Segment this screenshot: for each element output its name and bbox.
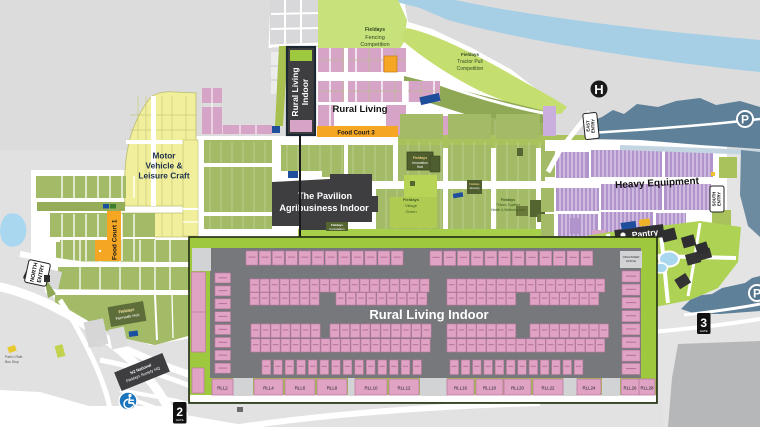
svg-text:Indoor: Indoor [300, 78, 310, 105]
svg-text:Fieldays: Fieldays [413, 156, 427, 160]
svg-text:Rural Living: Rural Living [333, 104, 388, 115]
svg-text:P: P [753, 287, 760, 301]
svg-text:RLL26: RLL26 [624, 385, 637, 390]
svg-text:Food Court 1: Food Court 1 [112, 219, 119, 260]
svg-text:Health & Wellbeing Hub: Health & Wellbeing Hub [491, 208, 525, 212]
svg-text:RLL2: RLL2 [217, 385, 228, 390]
svg-text:RLL18: RLL18 [483, 385, 496, 390]
svg-text:RLL22: RLL22 [542, 385, 555, 390]
svg-text:Fencing: Fencing [365, 35, 385, 41]
svg-text:RLL6: RLL6 [295, 385, 306, 390]
svg-text:Leisure Craft: Leisure Craft [138, 171, 189, 181]
svg-text:Rural Living: Rural Living [290, 67, 300, 116]
svg-text:Fieldays: Fieldays [403, 197, 420, 202]
svg-text:H: H [594, 82, 603, 97]
svg-text:Agribusiness Indoor: Agribusiness Indoor [279, 203, 369, 213]
svg-text:Fieldays: Fieldays [365, 27, 385, 33]
svg-text:RLL4: RLL4 [263, 385, 274, 390]
svg-text:Tūhono Together: Tūhono Together [496, 203, 521, 207]
svg-text:ENTRY: ENTRY [717, 192, 722, 206]
svg-text:3: 3 [700, 316, 707, 330]
svg-text:Fieldays: Fieldays [461, 52, 480, 57]
svg-text:Foundation: Foundation [329, 227, 344, 231]
svg-text:RLL24: RLL24 [583, 385, 596, 390]
svg-text:RLL8: RLL8 [327, 385, 338, 390]
svg-text:RLL16: RLL16 [454, 385, 467, 390]
svg-text:Competition: Competition [457, 66, 484, 72]
svg-text:Tractor Pull: Tractor Pull [457, 59, 482, 65]
svg-text:ENTRY: ENTRY [591, 119, 596, 133]
svg-text:P: P [741, 113, 749, 127]
svg-text:OFFICE: OFFICE [626, 259, 636, 263]
svg-text:Fieldays: Fieldays [501, 198, 515, 202]
svg-text:GATE: GATE [176, 418, 184, 422]
svg-text:RLL12: RLL12 [398, 385, 411, 390]
svg-text:Rural Living Indoor: Rural Living Indoor [369, 307, 488, 322]
svg-text:The Pavilion: The Pavilion [298, 191, 353, 201]
svg-text:RLL28: RLL28 [641, 385, 654, 390]
svg-text:GATE: GATE [700, 329, 708, 333]
svg-text:2: 2 [176, 405, 183, 419]
svg-text:Hub: Hub [417, 165, 423, 169]
svg-text:Vehicle &: Vehicle & [146, 161, 183, 171]
svg-text:Bus Stop: Bus Stop [5, 360, 19, 364]
svg-text:RLL10: RLL10 [365, 385, 378, 390]
svg-text:Food Court 3: Food Court 3 [337, 131, 375, 137]
svg-text:Competition: Competition [360, 42, 389, 48]
svg-text:RLL20: RLL20 [511, 385, 524, 390]
svg-text:Park'n Ride: Park'n Ride [5, 355, 23, 359]
svg-text:Green: Green [405, 209, 416, 214]
svg-text:Village: Village [405, 203, 418, 208]
svg-text:Motor: Motor [152, 151, 176, 161]
svg-text:Fieldays: Fieldays [469, 182, 480, 186]
svg-text:Advocacy: Advocacy [469, 187, 480, 190]
